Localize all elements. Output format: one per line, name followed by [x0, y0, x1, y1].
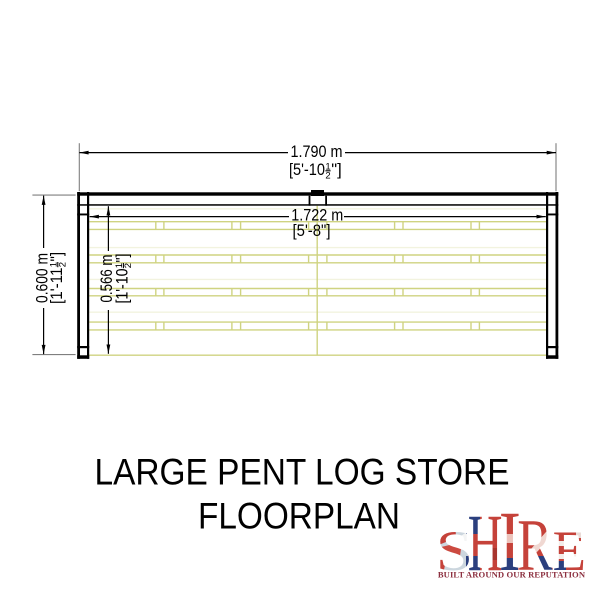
svg-text:[5'-10: [5'-10: [289, 160, 325, 179]
svg-text:1.790 m: 1.790 m: [291, 142, 343, 161]
svg-text:FLOORPLAN: FLOORPLAN: [198, 496, 400, 537]
svg-text:"]: "]: [47, 252, 66, 262]
svg-text:BUILT AROUND OUR REPUTATION: BUILT AROUND OUR REPUTATION: [438, 570, 586, 580]
svg-text:LARGE PENT LOG STORE: LARGE PENT LOG STORE: [95, 452, 510, 493]
svg-text:[1'-11: [1'-11: [47, 268, 66, 305]
svg-text:[5'-8"]: [5'-8"]: [293, 221, 331, 240]
svg-text:2: 2: [325, 171, 330, 182]
svg-text:2: 2: [58, 262, 69, 267]
svg-text:2: 2: [123, 263, 134, 268]
svg-text:"]: "]: [113, 254, 132, 263]
svg-text:[1'-10: [1'-10: [113, 269, 132, 304]
svg-text:"]: "]: [331, 160, 342, 179]
